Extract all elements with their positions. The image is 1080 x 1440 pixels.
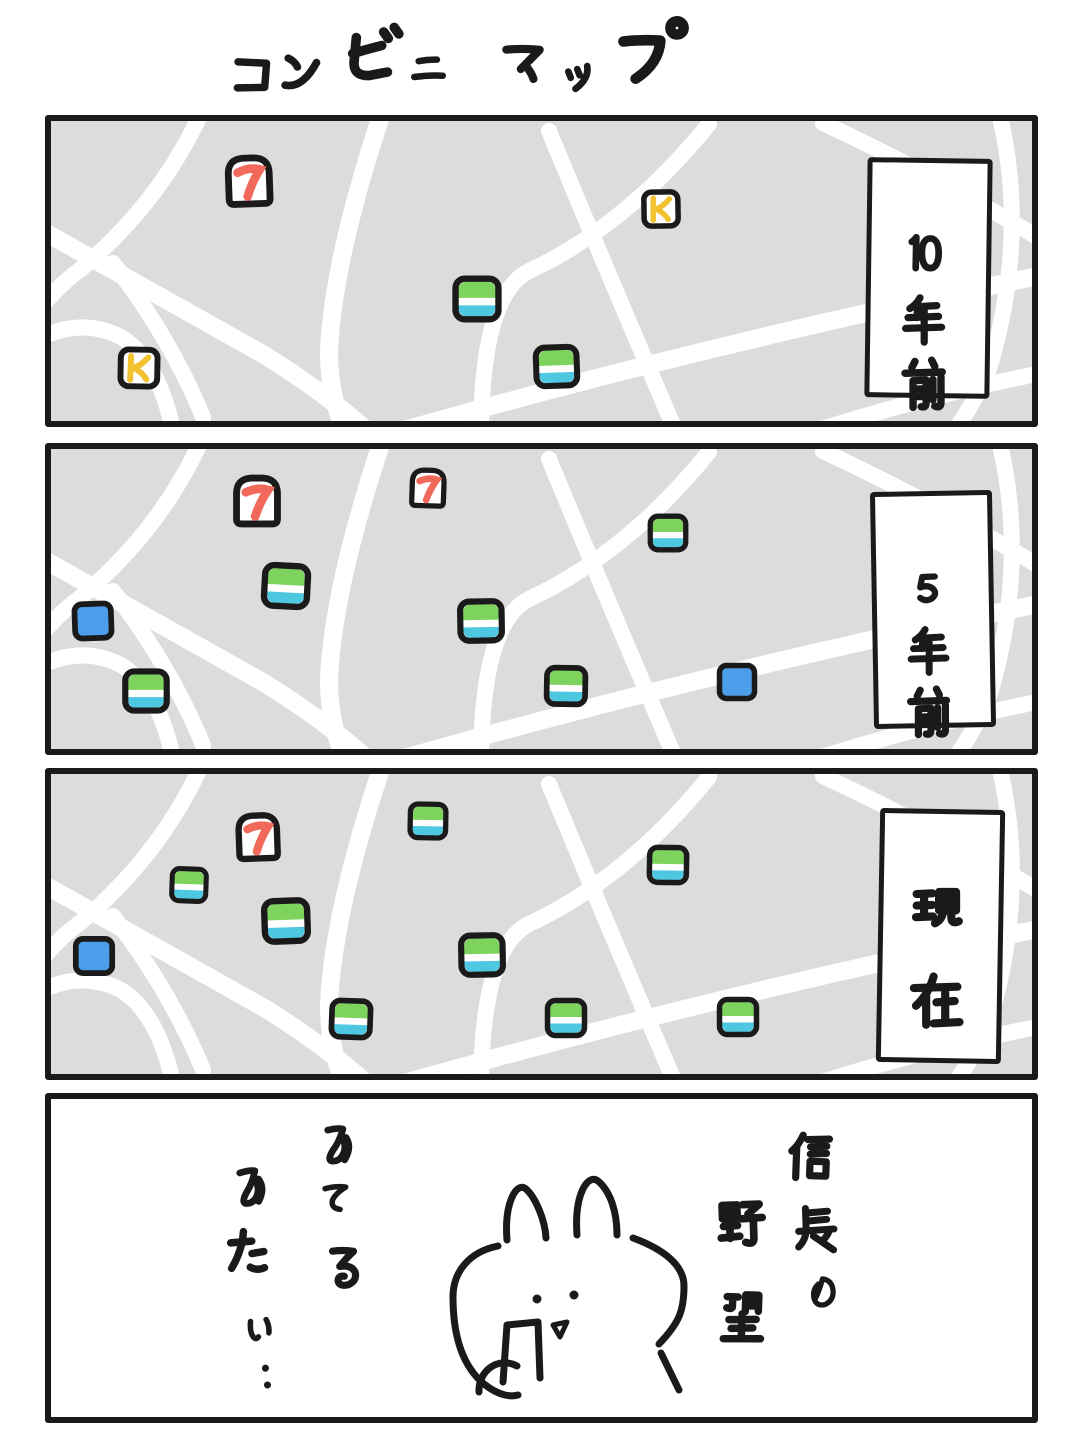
title-char	[269, 37, 335, 103]
title-char	[549, 48, 606, 105]
page-title-text: コンビニマップ	[0, 0, 1, 1]
page-title: コンビニマップ	[0, 0, 1080, 112]
marker-seven-eleven	[228, 807, 288, 867]
marker-lawson	[66, 594, 120, 648]
marker-familymart	[453, 593, 510, 650]
marker-seven-eleven	[403, 463, 453, 513]
comic-panel-punchline: みてる みたい… 信長の 野望	[45, 1093, 1038, 1423]
marker-familymart	[541, 993, 591, 1043]
marker-familymart	[448, 270, 506, 328]
marker-familymart	[643, 840, 694, 891]
marker-lawson	[712, 657, 762, 707]
marker-familymart	[256, 556, 317, 617]
period-label-box	[870, 490, 996, 729]
marker-familymart	[324, 992, 378, 1046]
title-char	[488, 28, 558, 98]
title-char	[220, 42, 284, 106]
map-panel-five-years-ago: 5年前	[45, 443, 1038, 755]
marker-circle-k	[636, 184, 687, 235]
marker-seven-eleven	[217, 149, 281, 213]
marker-familymart	[713, 992, 763, 1042]
period-label-box	[876, 808, 1005, 1064]
marker-circle-k	[112, 341, 167, 396]
map-panel-present: 現在	[45, 768, 1038, 1080]
marker-familymart	[118, 663, 174, 719]
title-char	[330, 17, 412, 99]
rabbit-character	[51, 1099, 1032, 1417]
marker-familymart	[540, 660, 593, 713]
marker-familymart	[644, 509, 692, 557]
marker-familymart	[165, 861, 213, 909]
marker-familymart	[454, 927, 511, 984]
marker-seven-eleven	[226, 470, 288, 532]
marker-familymart	[404, 797, 453, 846]
title-char	[600, 12, 690, 102]
title-char	[400, 40, 455, 95]
marker-familymart	[256, 891, 316, 951]
marker-lawson	[68, 930, 120, 982]
marker-familymart	[528, 338, 585, 395]
period-label-box	[864, 157, 992, 399]
map-panel-ten-years-ago: 10年前	[45, 115, 1038, 427]
